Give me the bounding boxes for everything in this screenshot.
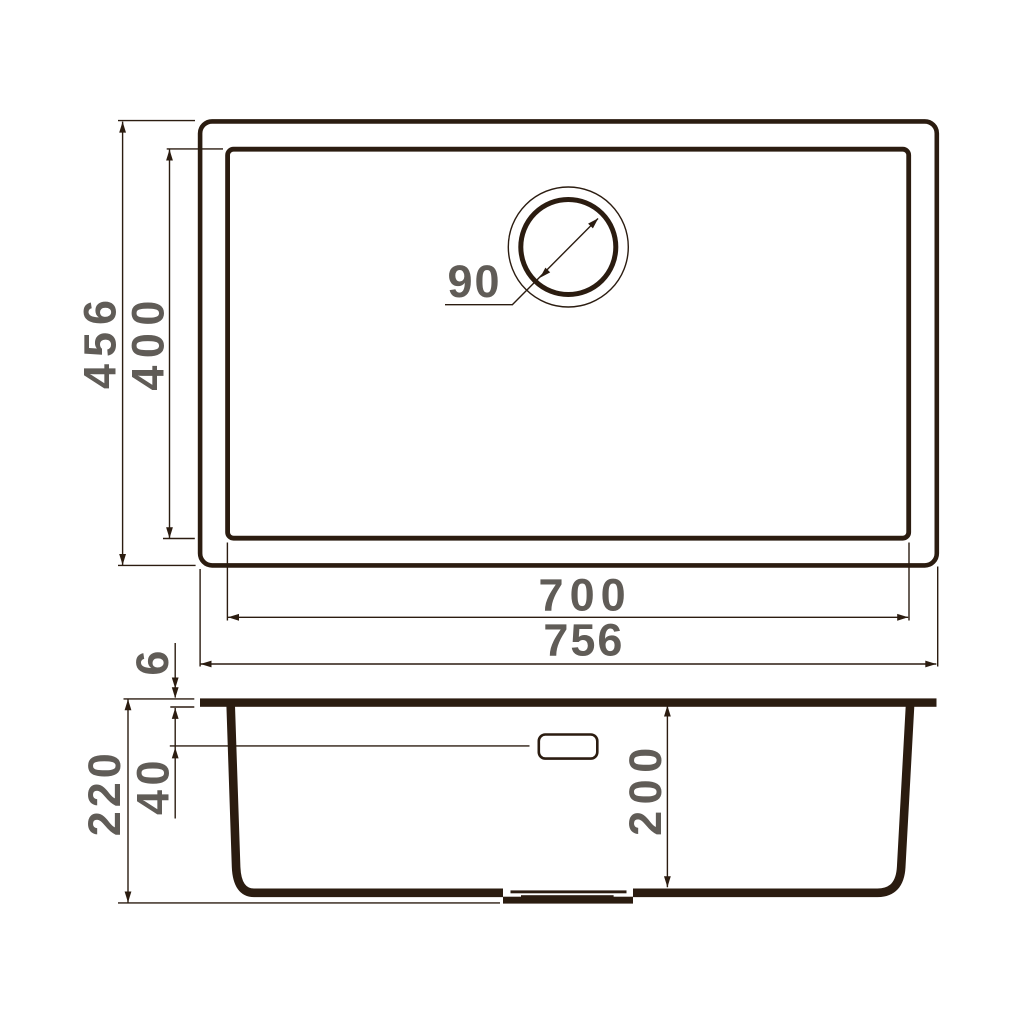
svg-text:220: 220 (79, 749, 130, 836)
svg-text:756: 756 (543, 615, 624, 666)
svg-text:400: 400 (123, 293, 174, 391)
svg-text:700: 700 (539, 569, 632, 620)
svg-text:40: 40 (128, 756, 179, 815)
svg-text:456: 456 (74, 293, 125, 389)
svg-text:90: 90 (447, 256, 501, 307)
svg-text:6: 6 (127, 651, 178, 676)
svg-text:200: 200 (620, 741, 671, 836)
